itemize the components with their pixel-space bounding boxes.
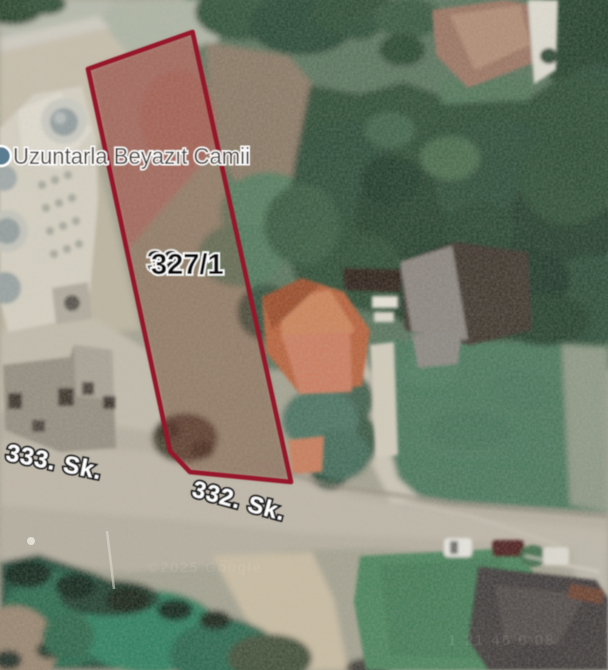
svg-text:327/1: 327/1 [151, 249, 224, 281]
svg-text:1 21 46 0:08: 1 21 46 0:08 [448, 632, 555, 649]
svg-text:Uzuntarla Beyazıt Camii: Uzuntarla Beyazıt Camii [13, 143, 250, 169]
svg-text:©2025 Google: ©2025 Google [148, 559, 263, 575]
